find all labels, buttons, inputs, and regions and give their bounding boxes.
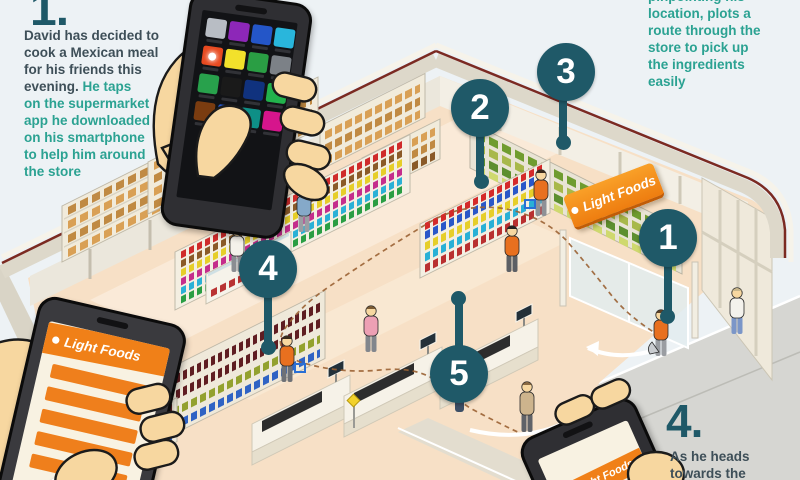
step-route-line: easily (648, 73, 798, 90)
step-1-line: on the supermarket (24, 95, 184, 112)
step-1-line: the store (24, 163, 184, 180)
map-pin-anchor (261, 340, 276, 355)
map-pin-anchor (556, 135, 571, 150)
map-pin-number: 1 (658, 218, 677, 258)
map-pin-1: 1 (639, 209, 697, 267)
infographic-supermarket-app: Light Foods Light Foods (0, 0, 800, 480)
map-pin-stem (264, 294, 272, 342)
map-pin-3: 3 (537, 43, 595, 101)
step-4-line: towards the (670, 465, 790, 480)
step-1-line: to help him around (24, 146, 184, 163)
step-1-line: on his smartphone (24, 129, 184, 146)
step-route-line: route through the (648, 22, 798, 39)
map-pin-anchor (660, 309, 675, 324)
map-pin-5: 5 (430, 345, 488, 403)
map-pin-stem (559, 97, 567, 139)
step-4-line: As he heads (670, 448, 790, 465)
map-pin-stem (455, 299, 463, 347)
map-pin-anchor (474, 174, 489, 189)
map-pin-number: 5 (449, 354, 468, 394)
step-1-line: evening. He taps (24, 78, 184, 95)
step-4-number: 4. (666, 394, 702, 448)
thumb-tapping-app (196, 106, 250, 178)
map-pin-number: 2 (470, 88, 489, 128)
map-pin-4: 4 (239, 240, 297, 298)
map-pin-number: 3 (556, 52, 575, 92)
step-route-text: pinpointing his location, plots a route … (648, 0, 798, 90)
step-route-line: store to pick up (648, 39, 798, 56)
fingers-gripping-checkout-phone (552, 376, 684, 480)
fingers-gripping-list-phone (48, 381, 187, 480)
step-1-line: for his friends this (24, 61, 184, 78)
fingers-gripping-top-phone (270, 70, 334, 207)
map-pin-stem (476, 133, 484, 177)
step-1-text: David has decided to cook a Mexican meal… (24, 27, 184, 180)
step-4-text: As he heads towards the (670, 448, 790, 480)
map-pin-number: 4 (258, 249, 277, 289)
step-1-line: app he downloaded (24, 112, 184, 129)
map-pin-stem (664, 263, 672, 315)
map-pin-2: 2 (451, 79, 509, 137)
step-1-line: cook a Mexican meal (24, 44, 184, 61)
map-pin-anchor (451, 291, 466, 306)
step-route-line: location, plots a (648, 5, 798, 22)
step-1-line: David has decided to (24, 27, 184, 44)
step-route-line: the ingredients (648, 56, 798, 73)
